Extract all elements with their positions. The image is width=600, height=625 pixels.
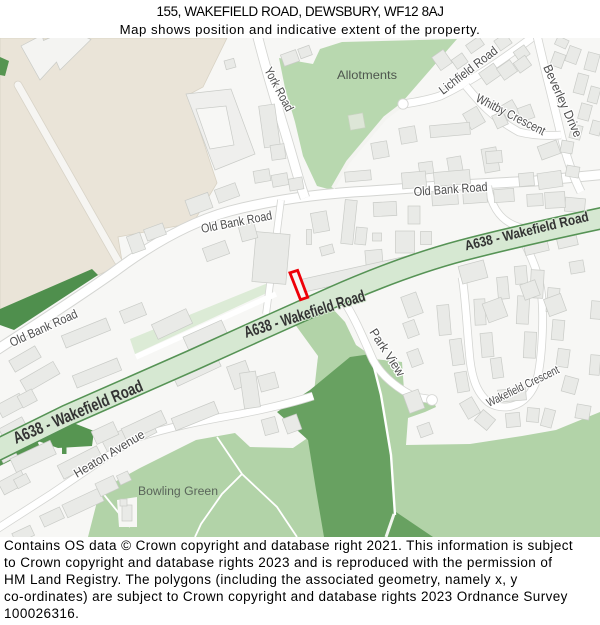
svg-text:Bowling Green: Bowling Green [138, 484, 218, 498]
svg-text:Allotments: Allotments [337, 68, 397, 82]
